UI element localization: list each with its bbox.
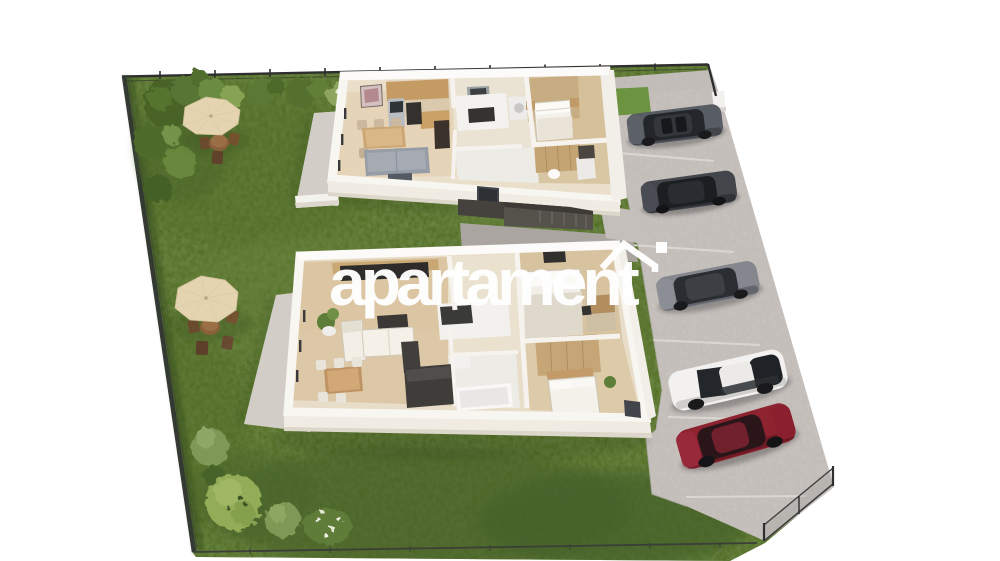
svg-text:apartament: apartament <box>329 245 640 319</box>
